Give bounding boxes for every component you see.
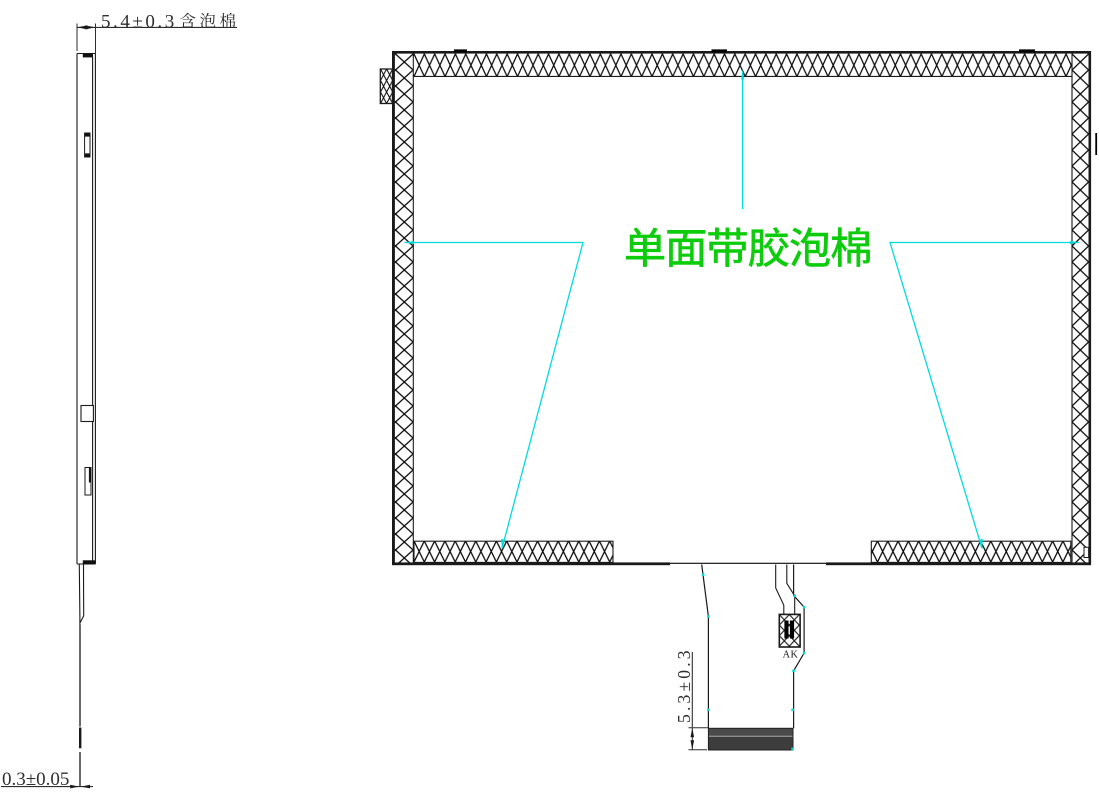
svg-text:5.3±0.3: 5.3±0.3 bbox=[674, 647, 694, 723]
svg-text:5.4±0.3: 5.4±0.3 bbox=[101, 11, 177, 32]
svg-text:AK: AK bbox=[783, 650, 799, 661]
